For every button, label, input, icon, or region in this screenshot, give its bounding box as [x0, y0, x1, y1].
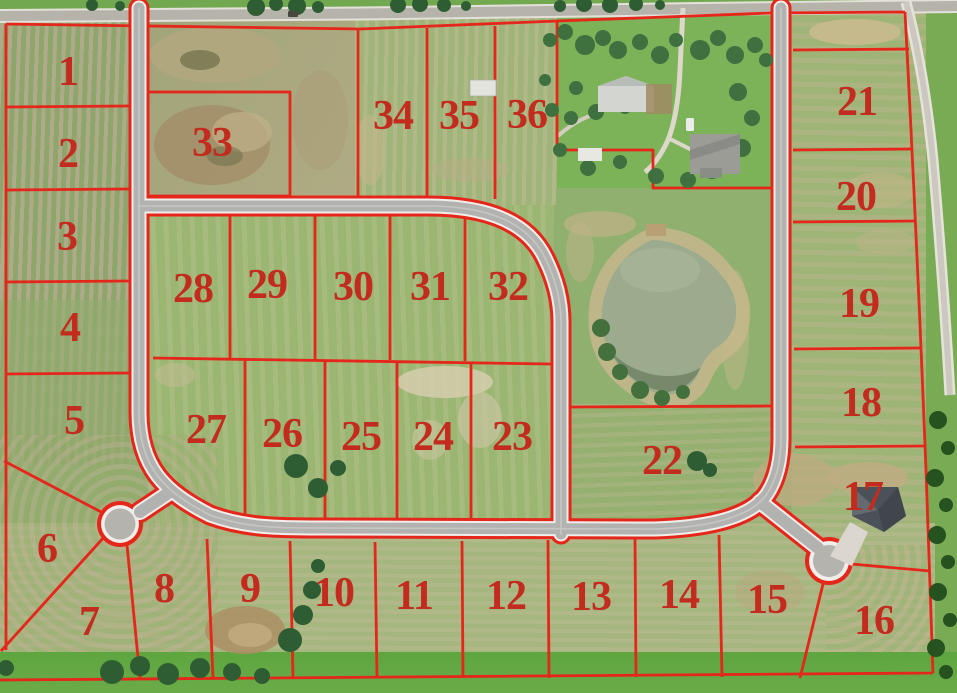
barn-lot-35: [470, 80, 496, 96]
car-driveway: [686, 118, 694, 131]
dirt-patches: [150, 19, 915, 654]
bottom-row-lot-lines: [207, 537, 636, 678]
pond: [588, 224, 750, 408]
car-top-road: [288, 11, 298, 17]
shed-west: [578, 148, 602, 161]
plat-map: 1234567891011121314151617181920212223242…: [0, 0, 957, 693]
map-overlay: [0, 0, 957, 693]
cul-de-sac-west: [105, 509, 136, 540]
left-column-lot-lines: [1, 106, 140, 678]
garden-plot: [646, 84, 672, 114]
